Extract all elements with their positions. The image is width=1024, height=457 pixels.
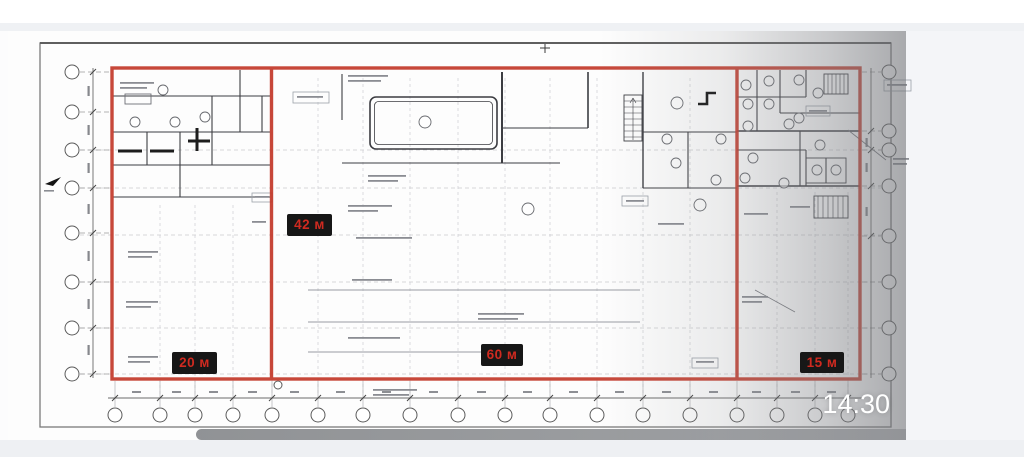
photo-bottom-shadow bbox=[196, 429, 906, 440]
left-axis-bubbles bbox=[65, 65, 110, 381]
bottom-axis-bubbles bbox=[108, 381, 862, 422]
dimension-badge-right-section: 15 м bbox=[800, 352, 844, 373]
dimension-badge-depth: 42 м bbox=[287, 214, 332, 236]
timestamp-overlay: 14:30 bbox=[798, 389, 890, 421]
dimension-badge-left-section: 20 м bbox=[172, 352, 217, 374]
section-mark-icon bbox=[44, 44, 550, 192]
screenshot-root: 42 м 20 м 60 м 15 м 14:30 bbox=[0, 0, 1024, 457]
interior-walls bbox=[113, 70, 886, 352]
dimension-badge-middle-section: 60 м bbox=[481, 344, 523, 366]
red-section-overlay bbox=[112, 68, 860, 379]
